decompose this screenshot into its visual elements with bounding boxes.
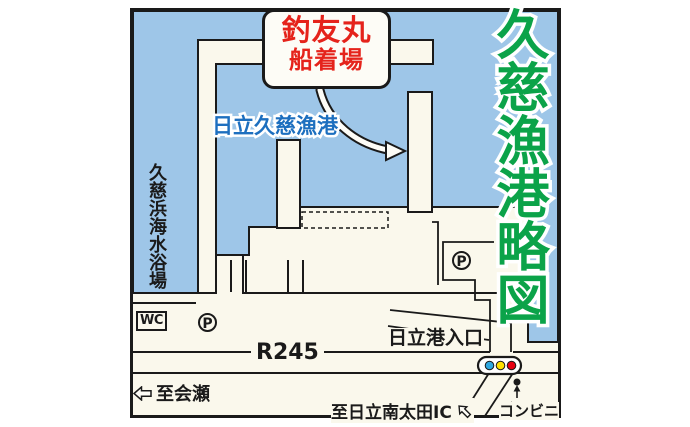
parking-icon: P: [452, 251, 471, 270]
traffic-light-icon: [478, 357, 521, 374]
signal-yellow-light: [496, 361, 505, 370]
harbor-sketch-map: 釣友丸 船着場 日立久慈漁港 日立久慈漁港 久慈浜海水浴場 久慈漁港略図 久慈漁…: [0, 0, 690, 427]
dashed-area: [302, 212, 388, 228]
beach-label: 久慈浜海水浴場: [143, 163, 169, 289]
hollow-left-arrow-icon: [133, 386, 152, 401]
convenience-store-label: コンビニ: [499, 402, 559, 420]
signal-blue-light: [485, 361, 494, 370]
parking-icon: P: [198, 313, 217, 332]
store-dot-icon: [514, 379, 521, 386]
boat-landing-label: 船着場: [265, 47, 388, 74]
port-entrance-label: 日立港入口: [387, 328, 484, 349]
boat-name-label: 釣友丸: [265, 14, 388, 47]
boat-landing-callout: 釣友丸 船着場: [262, 9, 391, 89]
landing-pier: [408, 92, 432, 212]
inner-pier: [277, 140, 300, 228]
hollow-down-left-arrow-icon: [454, 401, 474, 421]
wc-sign: WC: [136, 311, 167, 331]
route-245-label: R245: [251, 341, 324, 365]
to-ic-label: 至日立南太田IC: [331, 398, 452, 423]
port-name-label: 日立久慈漁港 日立久慈漁港: [212, 110, 338, 140]
to-ic-sign: 至日立南太田IC: [331, 398, 474, 423]
map-title: 久慈漁港略図 久慈漁港略図: [491, 7, 545, 325]
to-aise-sign: 至会瀬: [133, 380, 210, 406]
to-aise-label: 至会瀬: [156, 380, 210, 406]
signal-red-light: [507, 361, 516, 370]
